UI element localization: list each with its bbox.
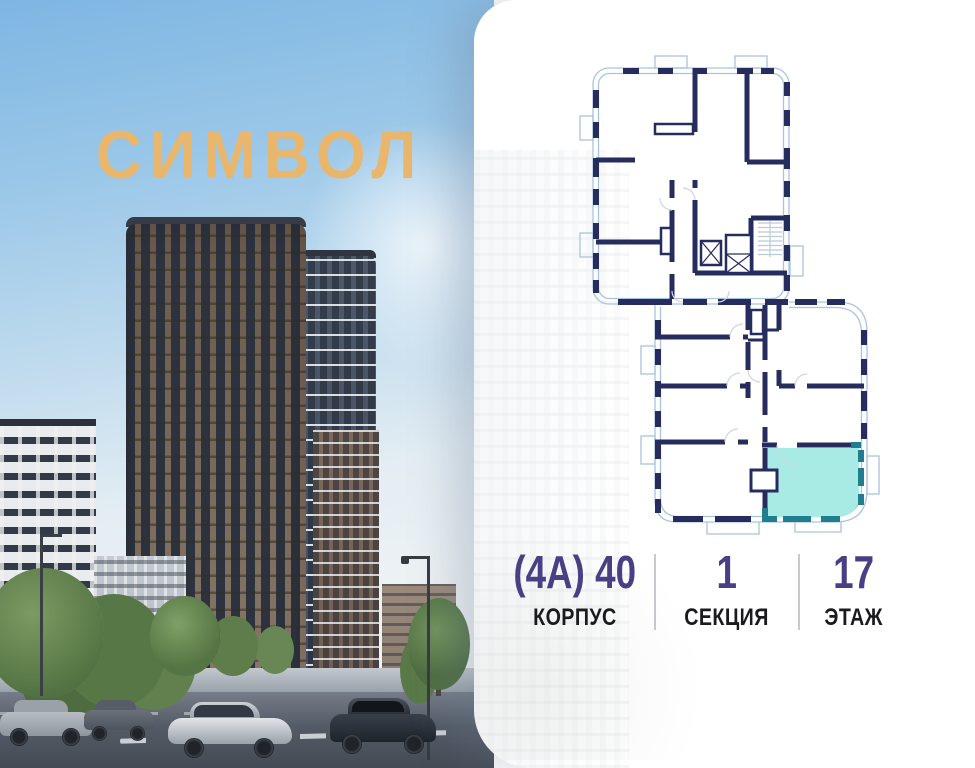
info-building: (4А) 40 КОРПУС: [496, 548, 654, 632]
elevator-shaft: [701, 235, 751, 273]
floor-label: ЭТАЖ: [825, 604, 883, 632]
tree: [150, 596, 220, 676]
floor-plan: [555, 30, 975, 545]
street-lamp-head: [401, 556, 409, 564]
building-label: КОРПУС: [533, 604, 617, 632]
parked-car: [84, 700, 154, 742]
street-lamp-arm: [40, 534, 62, 537]
brand-logo: СИМВОЛ: [96, 116, 406, 194]
building-value: (4А) 40: [514, 548, 637, 596]
unit-info-row: (4А) 40 КОРПУС 1 СЕКЦИЯ 17 ЭТАЖ: [496, 548, 910, 632]
parked-car: [0, 700, 92, 750]
tower-distant: [313, 430, 379, 696]
tree: [408, 598, 470, 690]
listing-card: СИМВОЛ: [0, 0, 975, 768]
building-photo: СИМВОЛ: [0, 0, 494, 768]
section-value: 1: [717, 548, 737, 596]
highlighted-unit[interactable]: [751, 445, 861, 519]
info-floor: 17 ЭТАЖ: [800, 548, 908, 632]
street-lamp: [40, 534, 43, 696]
car-dark-sedan: [330, 696, 436, 756]
unit-shaft-notch: [751, 470, 777, 491]
kitchen-counter: [655, 124, 693, 134]
floor-value: 17: [834, 548, 875, 596]
stairwell: [758, 221, 782, 257]
duct-shaft: [751, 310, 763, 334]
car-silver-sedan: [168, 702, 292, 758]
wall-pier: [661, 228, 671, 254]
info-section: 1 СЕКЦИЯ: [656, 548, 798, 632]
section-label: СЕКЦИЯ: [685, 604, 769, 632]
